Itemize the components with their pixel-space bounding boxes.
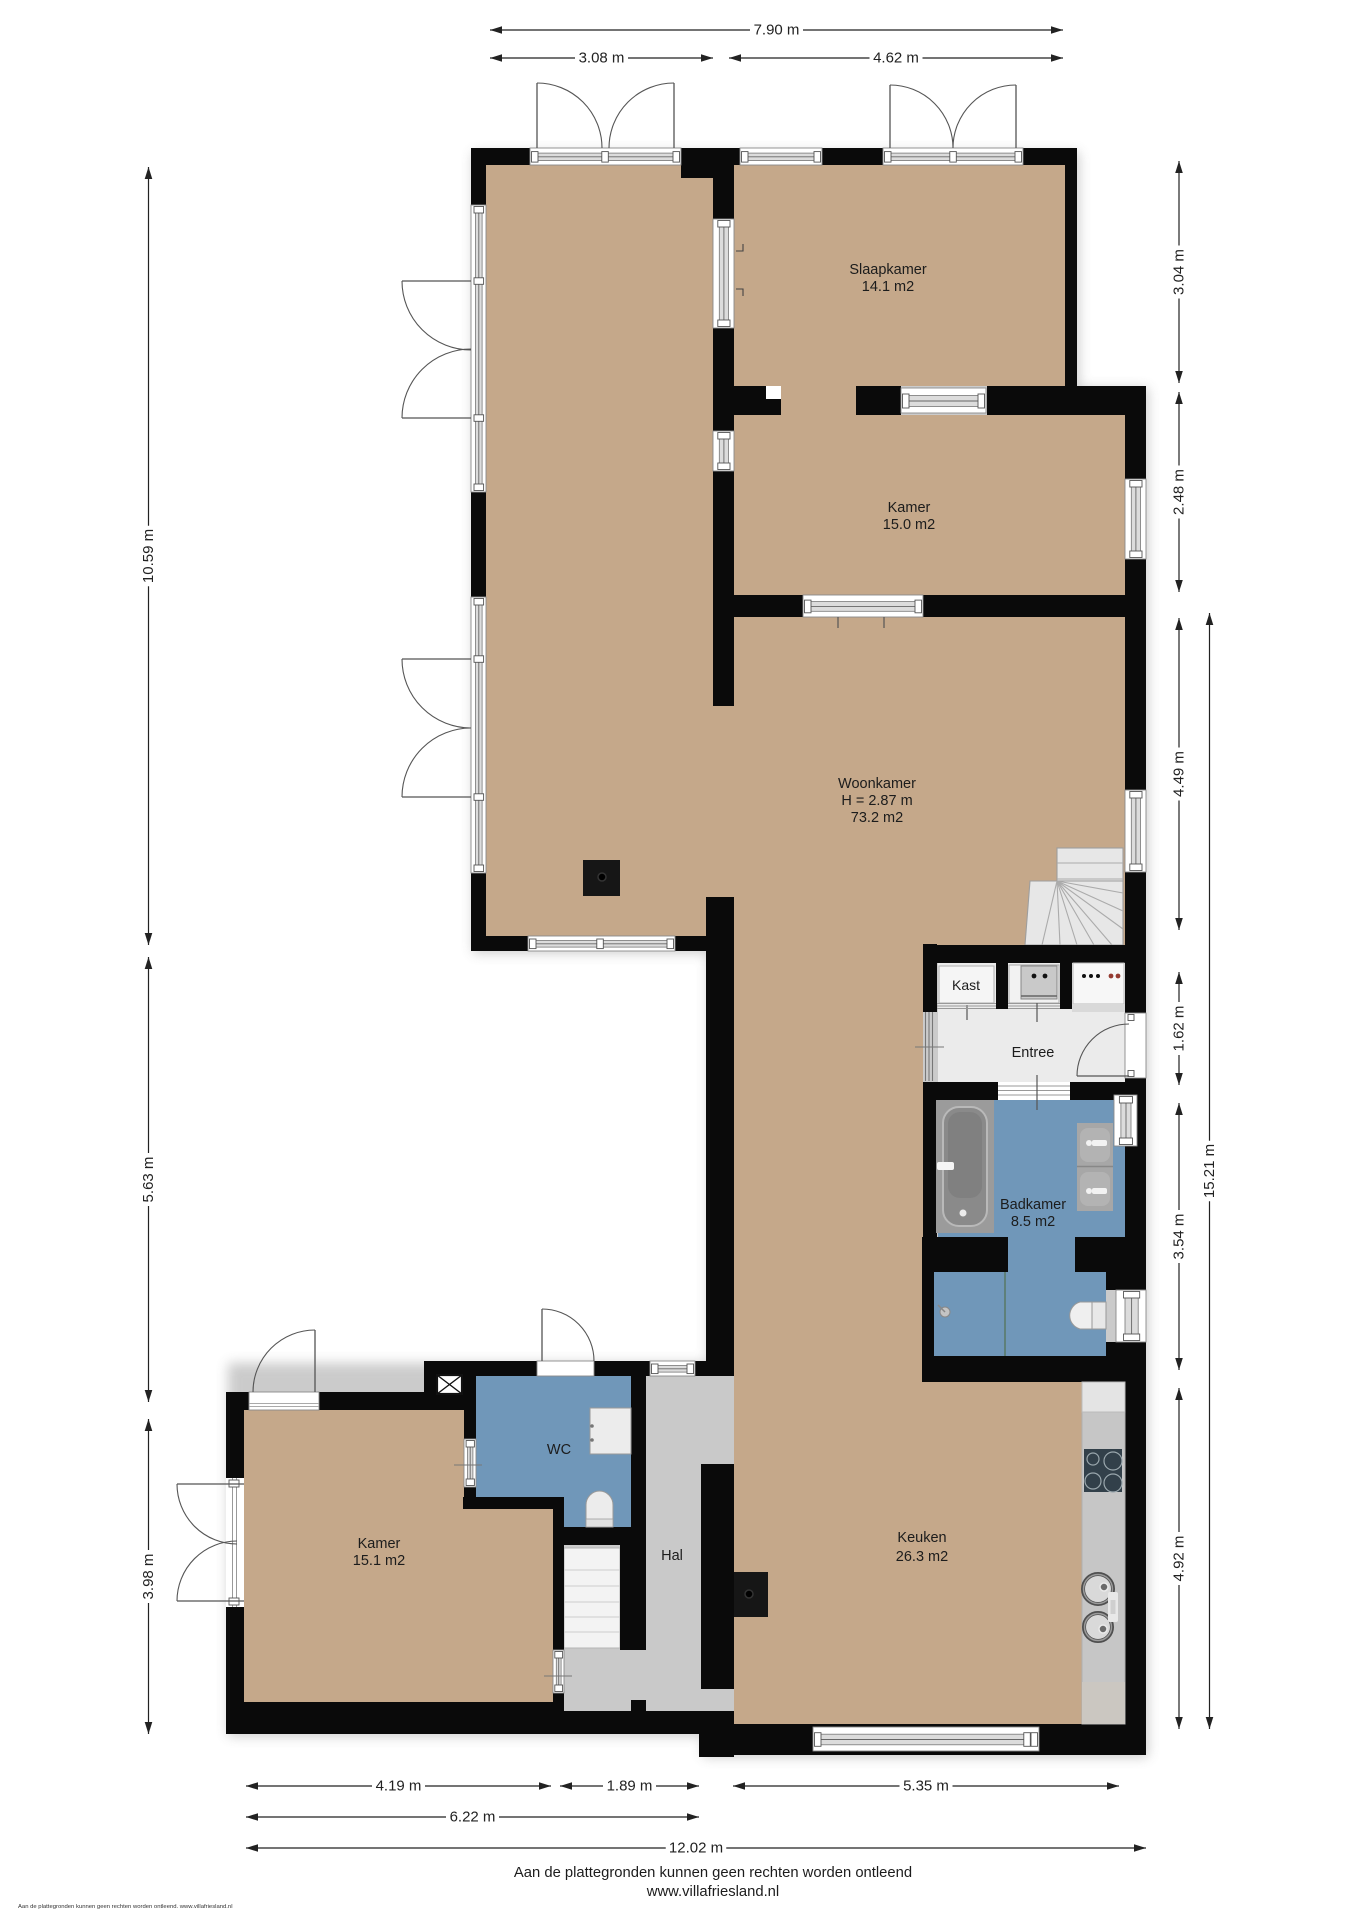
svg-text:4.19 m: 4.19 m [376,1778,422,1795]
svg-text:Aan de plattegronden kunnen ge: Aan de plattegronden kunnen geen rechten… [514,1865,912,1881]
svg-text:4.92 m: 4.92 m [1171,1536,1188,1582]
svg-text:5.63 m: 5.63 m [140,1157,157,1203]
svg-text:www.villafriesland.nl: www.villafriesland.nl [646,1884,779,1900]
svg-text:Slaapkamer: Slaapkamer [849,262,927,278]
svg-text:Hal: Hal [661,1548,683,1564]
svg-text:3.04 m: 3.04 m [1171,249,1188,295]
svg-text:15.0 m2: 15.0 m2 [883,517,935,533]
svg-text:Aan de plattegronden kunnen ge: Aan de plattegronden kunnen geen rechten… [18,1904,233,1910]
svg-text:4.49 m: 4.49 m [1171,751,1188,797]
svg-text:1.62 m: 1.62 m [1171,1006,1188,1052]
svg-text:73.2 m2: 73.2 m2 [851,810,903,826]
svg-text:8.5 m2: 8.5 m2 [1011,1214,1055,1230]
svg-text:3.98 m: 3.98 m [140,1554,157,1600]
svg-text:7.90 m: 7.90 m [754,22,800,39]
svg-text:6.22 m: 6.22 m [450,1809,496,1826]
svg-text:Kamer: Kamer [888,500,931,516]
svg-text:12.02 m: 12.02 m [669,1840,723,1857]
svg-text:5.35 m: 5.35 m [903,1778,949,1795]
svg-text:15.1 m2: 15.1 m2 [353,1553,405,1569]
svg-text:3.54 m: 3.54 m [1171,1214,1188,1260]
svg-text:WC: WC [547,1442,571,1458]
svg-text:Entree: Entree [1012,1045,1055,1061]
svg-text:Woonkamer: Woonkamer [838,776,916,792]
svg-text:Kamer: Kamer [358,1536,401,1552]
svg-text:H = 2.87 m: H = 2.87 m [841,793,912,809]
svg-text:Kast: Kast [952,977,980,993]
svg-text:1.89 m: 1.89 m [607,1778,653,1795]
svg-text:2.48 m: 2.48 m [1171,469,1188,515]
svg-text:Badkamer: Badkamer [1000,1197,1066,1213]
svg-text:26.3 m2: 26.3 m2 [896,1549,948,1565]
svg-text:4.62 m: 4.62 m [873,50,919,67]
svg-text:10.59 m: 10.59 m [140,529,157,583]
svg-text:15.21 m: 15.21 m [1201,1144,1218,1198]
svg-text:Keuken: Keuken [897,1530,946,1546]
svg-text:14.1 m2: 14.1 m2 [862,279,914,295]
svg-text:3.08 m: 3.08 m [579,50,625,67]
